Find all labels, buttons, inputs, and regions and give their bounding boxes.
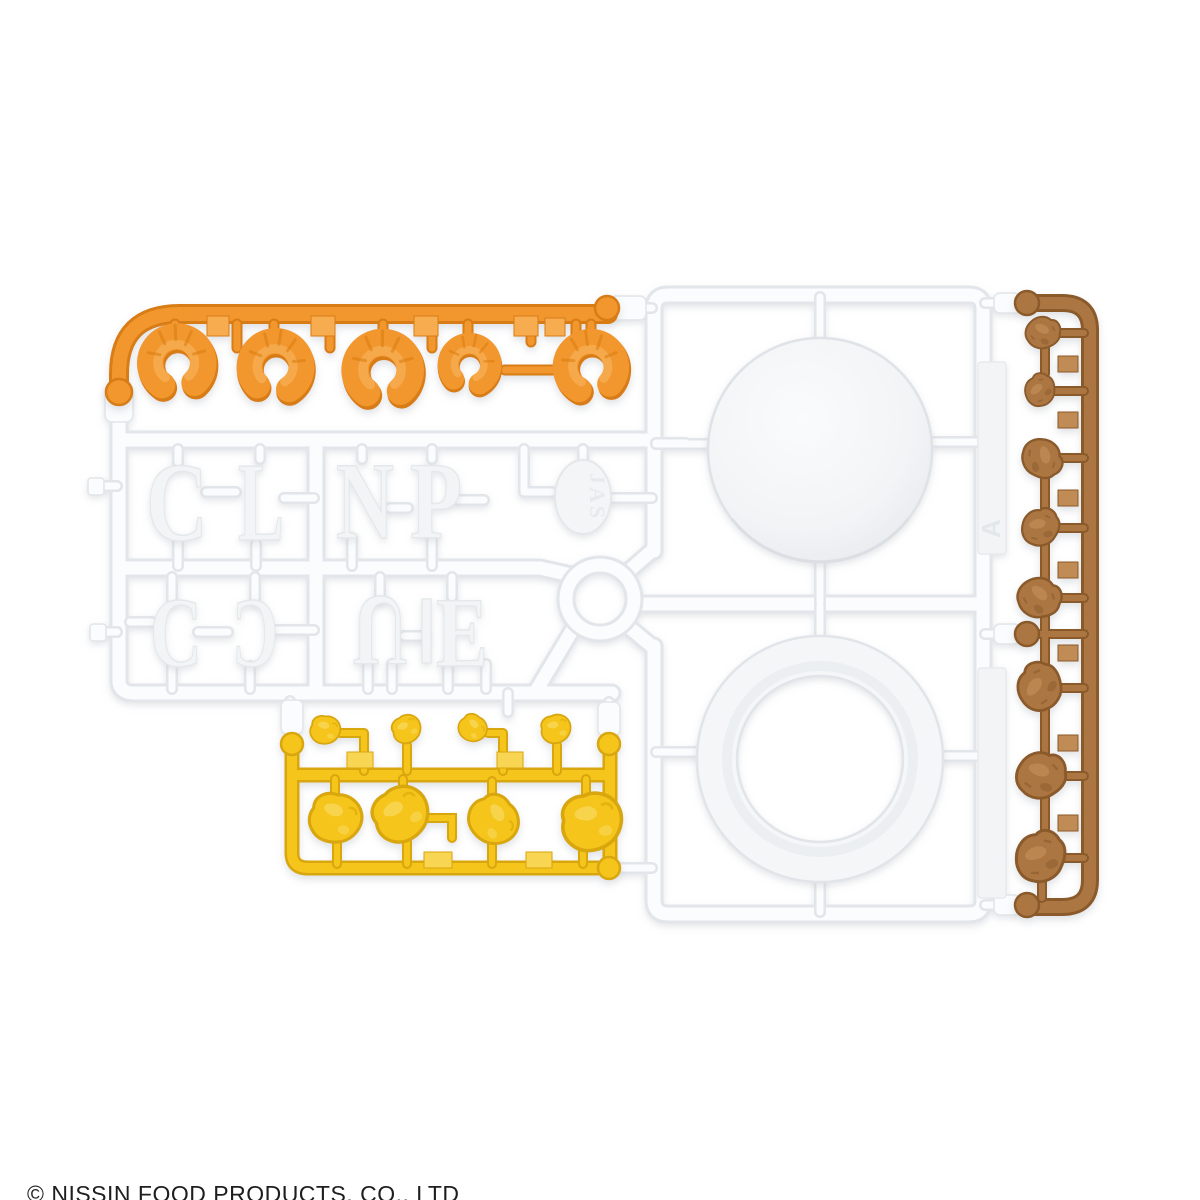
egg-part	[308, 714, 342, 747]
egg-part	[539, 713, 573, 746]
runner-tab	[1058, 645, 1078, 661]
runner-tab	[424, 852, 452, 868]
cup-rim-ring-part	[697, 636, 943, 882]
runner-tab	[1058, 412, 1078, 428]
shrimp-part	[445, 331, 497, 387]
shrimp-part	[146, 322, 208, 390]
runner-tab	[414, 316, 438, 336]
meat-runner	[1008, 291, 1090, 917]
meat-part	[1010, 656, 1071, 718]
egg-runner	[281, 709, 625, 879]
letter-part-n: N	[336, 440, 394, 562]
clip	[90, 624, 106, 641]
meat-part	[1013, 749, 1069, 802]
letter-part-e: E	[436, 577, 488, 688]
egg-part	[305, 788, 367, 848]
runner-tab	[1058, 735, 1078, 751]
model-kit-sprue-photo: A C L N P JAS C C U	[0, 0, 1200, 1200]
clip	[598, 702, 620, 736]
shrimp-part	[247, 328, 307, 394]
runner-pad	[598, 857, 620, 879]
jas-mark-label: JAS	[585, 473, 610, 521]
runner-tab	[1058, 356, 1078, 372]
meat-part	[1018, 505, 1064, 549]
runner-tab	[1058, 562, 1078, 578]
letter-parts-row1: C L N P JAS	[146, 440, 611, 565]
letter-part-p: P	[410, 440, 462, 562]
runner-tab	[497, 752, 523, 768]
runner-tag-letter: A	[976, 519, 1006, 538]
egg-part	[364, 777, 438, 850]
letter-part-c: C	[146, 441, 208, 565]
shrimp-part	[558, 326, 623, 396]
letter-part-c-mirrored: C	[232, 577, 278, 688]
letter-part-u-flipped: U	[352, 574, 408, 687]
runner-pad	[1015, 291, 1039, 315]
clip	[88, 478, 104, 495]
egg-part	[388, 711, 426, 748]
copyright-text: © NISSIN FOOD PRODUCTS, CO., LTD	[27, 1181, 460, 1200]
letter-part-l: L	[238, 441, 284, 565]
runner-pad	[595, 296, 619, 320]
meat-part	[1017, 433, 1066, 484]
shrimp-runner	[106, 296, 623, 405]
runner-tab	[1058, 490, 1078, 506]
runner-tab	[347, 752, 373, 768]
runner-tab	[526, 852, 552, 868]
letter-part-bar	[422, 599, 431, 663]
runner-tab	[1058, 815, 1078, 831]
runner-tab	[207, 316, 229, 336]
jas-mark-disc: JAS	[555, 460, 611, 534]
meat-part	[1021, 312, 1064, 353]
egg-part	[454, 709, 493, 747]
shrimp-part	[352, 329, 415, 398]
runner-pad	[598, 733, 620, 755]
runner-tab	[545, 318, 565, 336]
letter-part-c2: C	[150, 577, 202, 688]
runner-tab	[311, 316, 335, 336]
runner-pad	[1015, 622, 1039, 646]
meat-part	[1008, 825, 1074, 890]
runner-pad	[281, 733, 303, 755]
clip	[281, 700, 303, 734]
egg-part	[460, 787, 527, 854]
runner-pad	[1015, 893, 1039, 917]
product-photo-page: A C L N P JAS C C U	[0, 0, 1200, 1200]
runner-tag-plate	[978, 668, 1006, 898]
runner-tab	[514, 316, 538, 336]
runner-pad	[106, 379, 132, 405]
